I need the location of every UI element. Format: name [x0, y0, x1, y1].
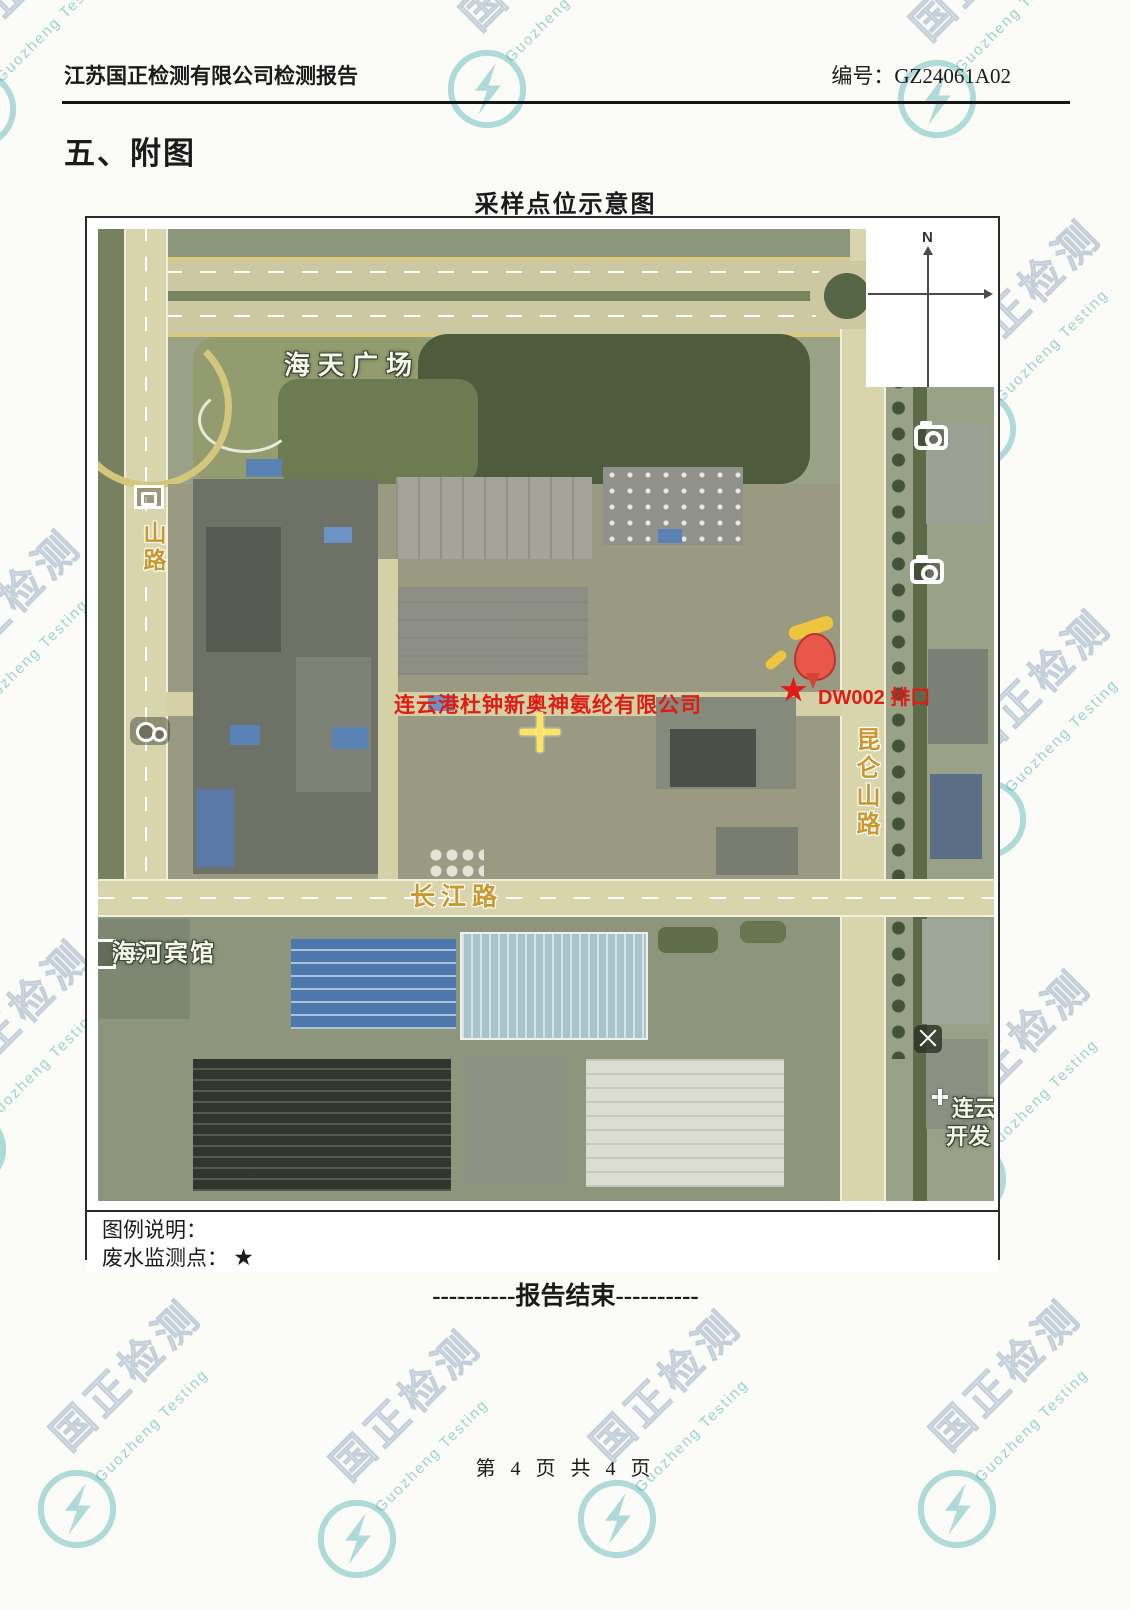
dark-warehouse [193, 1059, 451, 1191]
left-road-label: 山路 [136, 521, 170, 575]
legend-heading: 图例说明： [102, 1217, 983, 1244]
building-block [396, 477, 592, 559]
building-block [930, 774, 982, 859]
compass-axis-vertical [927, 255, 929, 387]
navigation-icon [914, 1025, 942, 1053]
park-lawn [278, 379, 478, 484]
roundabout-island [824, 273, 870, 319]
glass-building [460, 932, 648, 1040]
road-lane-line [98, 897, 994, 899]
compass-north-label: N [922, 229, 933, 246]
factory-road-vertical [378, 559, 398, 885]
legend-item-label: 废水监测点： [102, 1246, 228, 1270]
section-title: 五、附图 [64, 128, 196, 173]
blue-roof [658, 529, 682, 543]
camera-icon [910, 559, 944, 584]
blue-roof [246, 459, 282, 477]
tank-cluster [428, 847, 484, 881]
camera-icon [914, 425, 948, 450]
legend-star-symbol: ★ [233, 1245, 254, 1270]
hotel-label: 海河宾馆 [112, 933, 216, 968]
blue-warehouse [291, 939, 456, 1029]
building-block [670, 729, 756, 787]
tree-row [887, 369, 913, 1059]
compass-arrow-up [923, 246, 933, 255]
legend-item: 废水监测点： ★ [102, 1244, 983, 1272]
figure-title: 采样点位示意图 [0, 184, 1131, 219]
report-page: 江苏国正检测有限公司检测报告 编号：GZ24061A02 五、附图 采样点位示意… [0, 0, 1131, 1600]
kunlun-road-label: 昆仑山路 [848, 727, 883, 839]
district-green-strip [913, 334, 927, 1201]
poi-cube-icon [134, 485, 164, 509]
report-header-title: 江苏国正检测有限公司检测报告 [64, 60, 358, 90]
map-legend: 图例说明： 废水监测点： ★ [87, 1210, 998, 1272]
white-warehouse [586, 1059, 784, 1187]
building-block [716, 827, 798, 875]
changjiang-road [98, 879, 994, 917]
factory-gears-icon [130, 717, 170, 745]
company-cross-marker [537, 712, 543, 752]
blue-roof [332, 727, 368, 749]
header-divider [62, 101, 1070, 104]
compass-axis-horizontal [868, 293, 986, 295]
outfall-label: DW002 排口 [818, 681, 930, 710]
outfall-star: ★ [780, 673, 807, 708]
company-label: 连云港杜钟新奥神氨纶有限公司 [394, 689, 702, 719]
devzone-label-line2: 开发 [946, 1119, 990, 1151]
blue-roof [324, 527, 352, 543]
building-block [466, 1057, 566, 1183]
blue-roof [230, 725, 260, 745]
building-block [296, 657, 371, 792]
tank-row [196, 789, 234, 867]
changjiang-road-label: 长江路 [410, 877, 503, 913]
building-block [928, 649, 988, 744]
green-patch [658, 927, 718, 953]
green-patch [740, 921, 786, 943]
report-number: 编号：GZ24061A02 [831, 60, 1011, 90]
plaza-label: 海天广场 [284, 345, 420, 382]
building-block [398, 587, 588, 675]
page-number: 第 4 页 共 4 页 [0, 1452, 1131, 1481]
report-end-marker: ----------报告结束---------- [0, 1276, 1131, 1312]
building-block [206, 527, 281, 652]
satellite-map: 海天广场 山路 连云港杜钟新奥神氨纶有限公司 ★ DW002 排口 昆仑山路 长… [98, 229, 994, 1201]
building-block [922, 919, 990, 1024]
devzone-cross-icon [938, 1089, 942, 1105]
compass-arrow-right [984, 289, 993, 299]
map-frame: 海天广场 山路 连云港杜钟新奥神氨纶有限公司 ★ DW002 排口 昆仑山路 长… [85, 216, 1000, 1260]
compass-box: N [866, 229, 994, 387]
